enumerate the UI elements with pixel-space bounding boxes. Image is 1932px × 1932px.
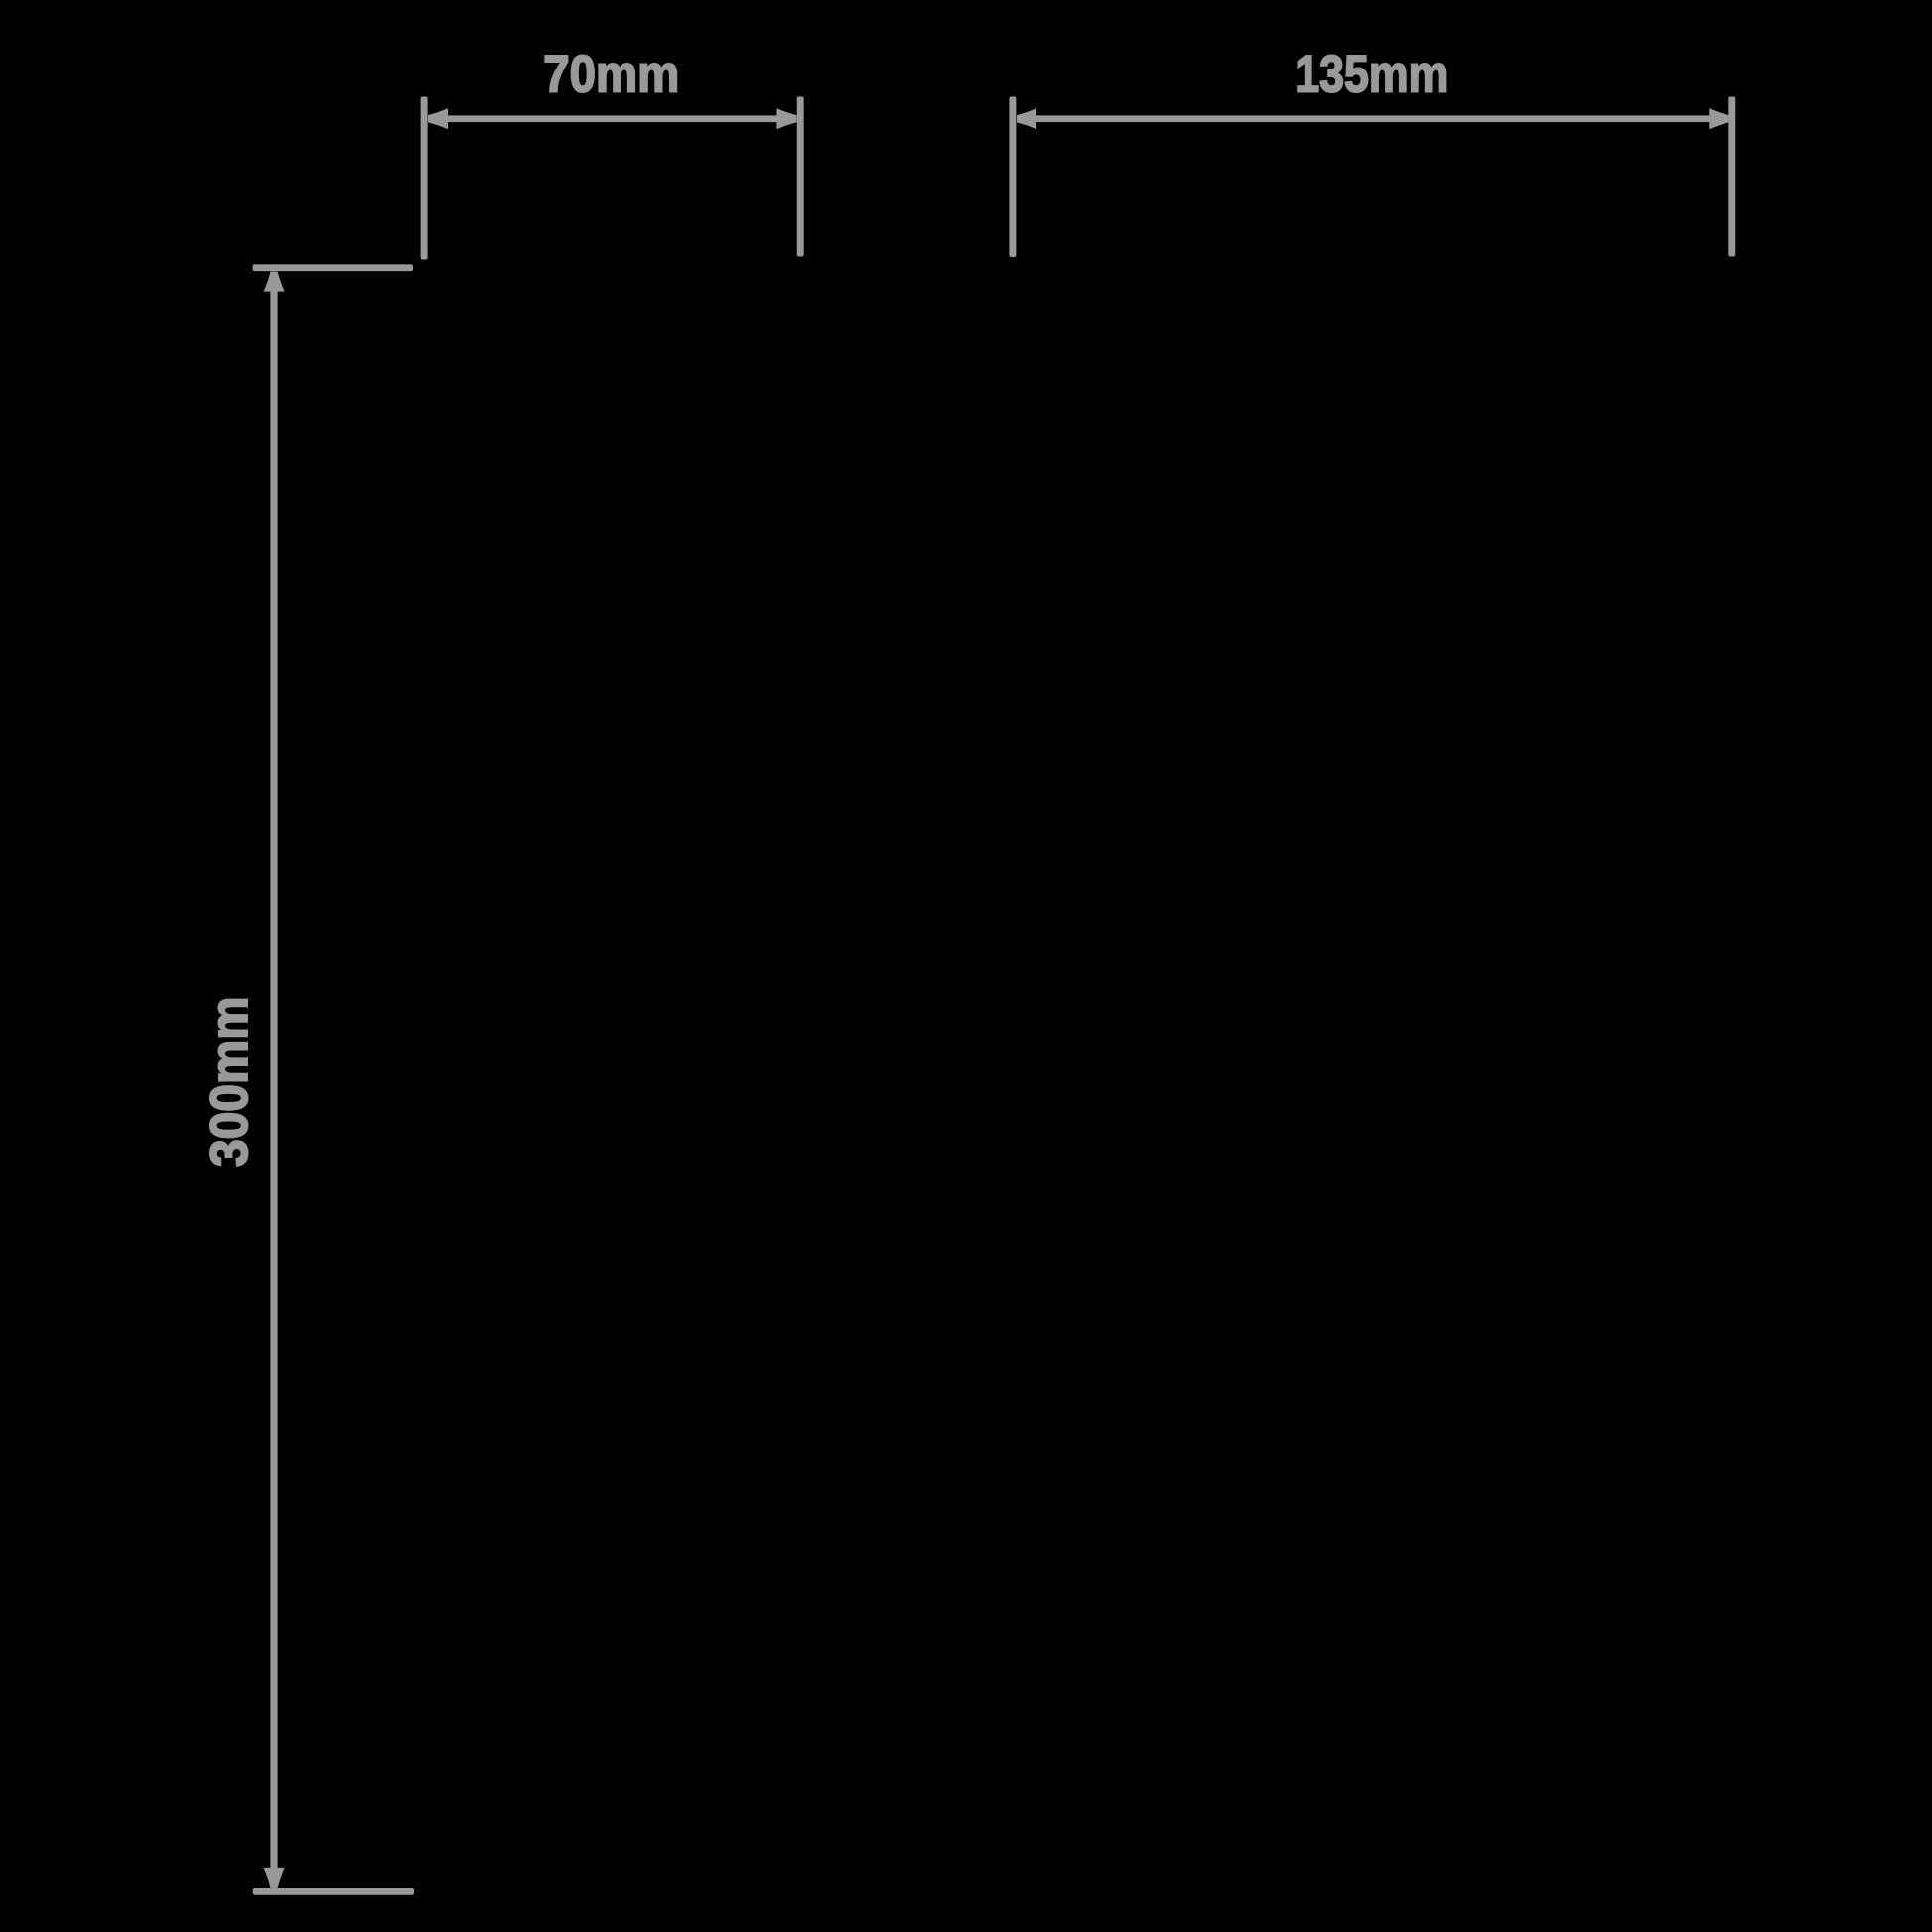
svg-text:300mm: 300mm xyxy=(201,997,259,1168)
svg-text:70mm: 70mm xyxy=(543,46,679,104)
svg-text:135mm: 135mm xyxy=(1295,46,1448,104)
